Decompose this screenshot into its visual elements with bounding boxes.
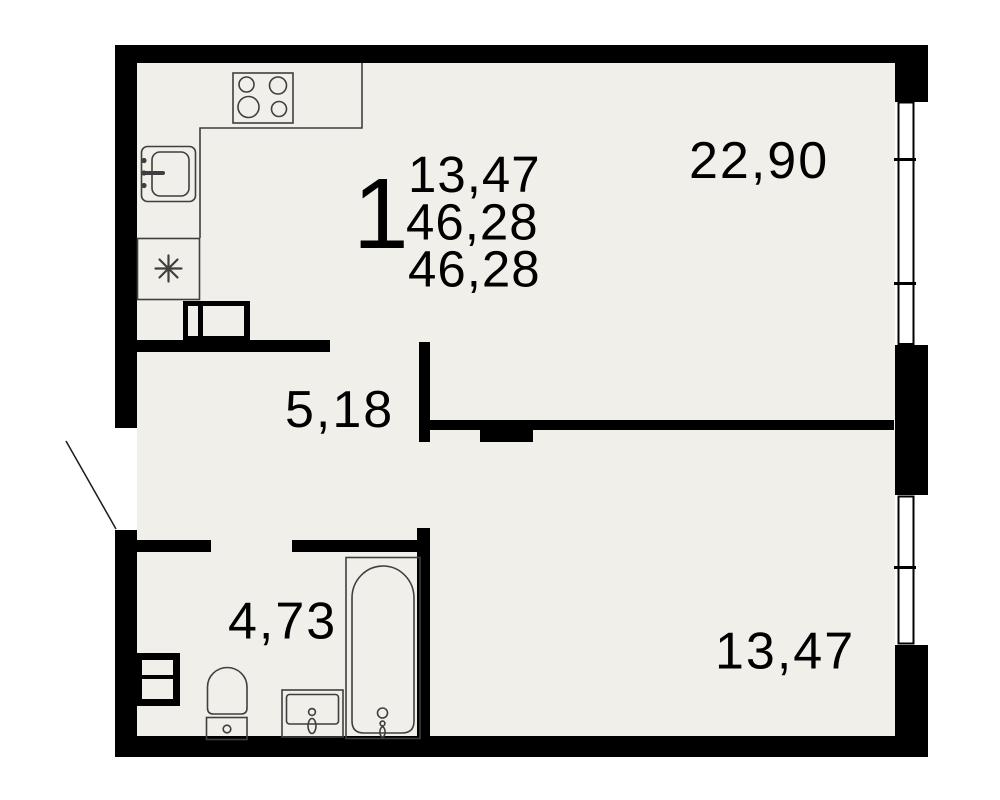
window-top-mullion-2 — [894, 282, 916, 285]
wall-right-pier — [895, 345, 928, 495]
wall-top — [115, 45, 928, 63]
vent-bath-cell-1 — [142, 660, 173, 675]
window-bottom-frame — [899, 497, 914, 644]
area-label-living: 22,90 — [689, 132, 829, 190]
wall-left-upper — [115, 45, 137, 428]
wall-bath-right — [417, 528, 430, 740]
floor-plan-canvas: 1 13,47 46,28 46,28 22,90 5,18 4,73 13,4… — [0, 0, 1000, 800]
floor-plan: 1 13,47 46,28 46,28 22,90 5,18 4,73 13,4… — [0, 0, 1000, 800]
door-threshold-block — [480, 429, 533, 442]
entrance-door-swing-icon — [66, 441, 116, 529]
window-top-frame — [899, 103, 914, 345]
vent-kitchen-cell-2 — [203, 306, 244, 336]
window-bottom-icon — [894, 497, 916, 644]
window-bottom-mullion — [894, 566, 916, 569]
vent-bath-cell-2 — [142, 679, 173, 699]
wall-bath-top-right — [292, 540, 418, 552]
vent-kitchen-cell-1 — [188, 306, 198, 336]
wall-right-top-corner — [895, 45, 928, 102]
kitchen-sink-knob-3 — [141, 183, 146, 188]
area-label-bedroom: 13,47 — [715, 623, 855, 681]
room-count-label: 1 — [353, 158, 409, 270]
snowflake-icon — [156, 256, 182, 282]
area-label-hallway: 5,18 — [285, 381, 394, 439]
wall-left-lower — [115, 530, 137, 757]
wall-bath-top-left — [137, 540, 211, 552]
area-label-bathroom: 4,73 — [228, 593, 337, 651]
window-top-mullion-1 — [894, 158, 916, 161]
wall-right-bottom — [895, 645, 928, 757]
wall-kitchen-partition — [115, 340, 330, 352]
kitchen-sink-knob-1 — [141, 158, 146, 163]
wall-room-divider — [428, 420, 894, 430]
window-top-icon — [894, 103, 916, 345]
summary-area-3: 46,28 — [408, 241, 541, 298]
vent-shaft-kitchen-icon — [183, 301, 250, 340]
vent-shaft-bathroom-icon — [137, 653, 180, 706]
